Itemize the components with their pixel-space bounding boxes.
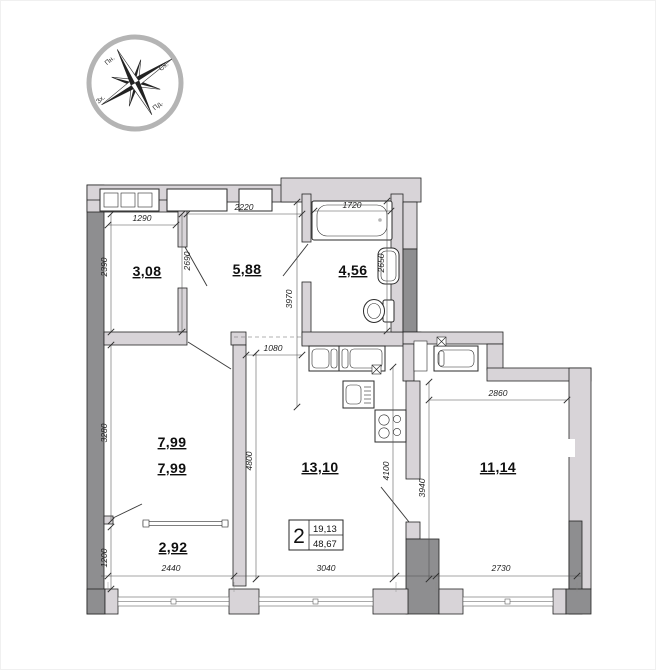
kitchen-cabinets (309, 346, 385, 374)
sliding-door (143, 520, 228, 527)
door-swing-room4 (188, 342, 231, 369)
compass-label-south: Пд. (152, 100, 165, 112)
washer-shelf (414, 341, 427, 371)
dim-4800: 4800 (244, 451, 254, 470)
shaft-column (403, 249, 417, 332)
cabinet-unit (167, 189, 227, 211)
room-label-11-14: 11,14 (480, 459, 516, 475)
room-label-3-08: 3,08 (133, 263, 162, 279)
corner-column-right (566, 589, 591, 614)
door-swing-room7 (381, 487, 409, 522)
dim-2390: 2390 (99, 257, 109, 277)
room-label-5-88: 5,88 (233, 261, 262, 277)
toilet (364, 300, 395, 323)
compass-label-west: Зх. (95, 94, 107, 105)
dim-3040: 3040 (317, 563, 336, 573)
info-total-area: 48,67 (313, 539, 337, 550)
info-box: 2 19,13 48,67 (289, 520, 343, 550)
room-label-7-99-a: 7,99 (158, 434, 187, 450)
dim-2440: 2440 (161, 563, 181, 573)
windows (118, 597, 553, 606)
room-label-13-10: 13,10 (301, 459, 338, 475)
stove (375, 410, 406, 442)
dim-1290: 1290 (133, 213, 152, 223)
kitchen-sink (343, 381, 374, 408)
dim-1720: 1720 (343, 200, 362, 210)
room-labels: 3,08 5,88 4,56 7,99 7,99 2,92 13,10 11,1… (133, 261, 517, 555)
compass-label-north: Пн. (104, 55, 117, 67)
corner-column-left (87, 589, 105, 614)
compass-label-east: Сх. (158, 61, 170, 73)
door-swing-bathroom (283, 244, 308, 276)
dim-3940: 3940 (417, 478, 427, 497)
dim-1200: 1200 (99, 548, 109, 567)
entry-column (406, 539, 439, 614)
room-label-4-56: 4,56 (339, 262, 368, 278)
door-swing-closet (113, 504, 142, 518)
room-label-7-99-b: 7,99 (158, 460, 187, 476)
dim-4100: 4100 (381, 461, 391, 480)
info-living-area: 19,13 (313, 524, 337, 535)
compass-rose: Пн. Сх. Зх. Пд. (89, 37, 181, 129)
info-rooms-count: 2 (293, 525, 305, 548)
valve-mark (372, 365, 381, 374)
floor-plan-page: Пн. Сх. Зх. Пд. (0, 0, 656, 670)
dim-2730: 2730 (491, 563, 511, 573)
dim-2690: 2690 (182, 251, 192, 271)
dim-3970: 3970 (284, 289, 294, 308)
dim-3280: 3280 (99, 423, 109, 442)
room-label-2-92: 2,92 (159, 539, 188, 555)
dim-2650: 2650 (376, 253, 386, 273)
dim-1080: 1080 (264, 343, 283, 353)
dim-2220: 2220 (234, 202, 254, 212)
dim-2860: 2860 (488, 388, 508, 398)
dimension-labels: 1290 2220 1720 1080 2860 2390 3280 1200 … (99, 200, 511, 573)
